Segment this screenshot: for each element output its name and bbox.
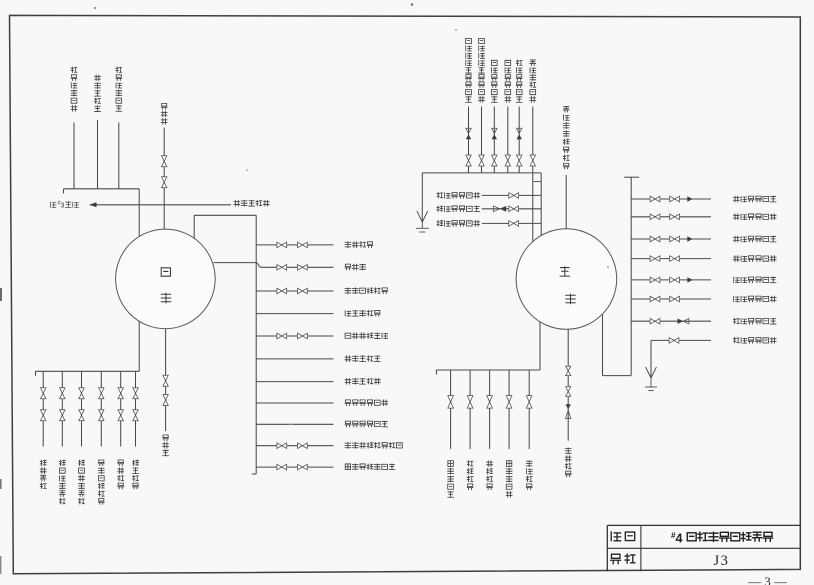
svg-text:J3: J3: [714, 553, 730, 569]
svg-text:— 3 —: — 3 —: [747, 574, 788, 585]
svg-text:3: 3: [61, 203, 65, 210]
svg-text:4: 4: [676, 532, 683, 546]
